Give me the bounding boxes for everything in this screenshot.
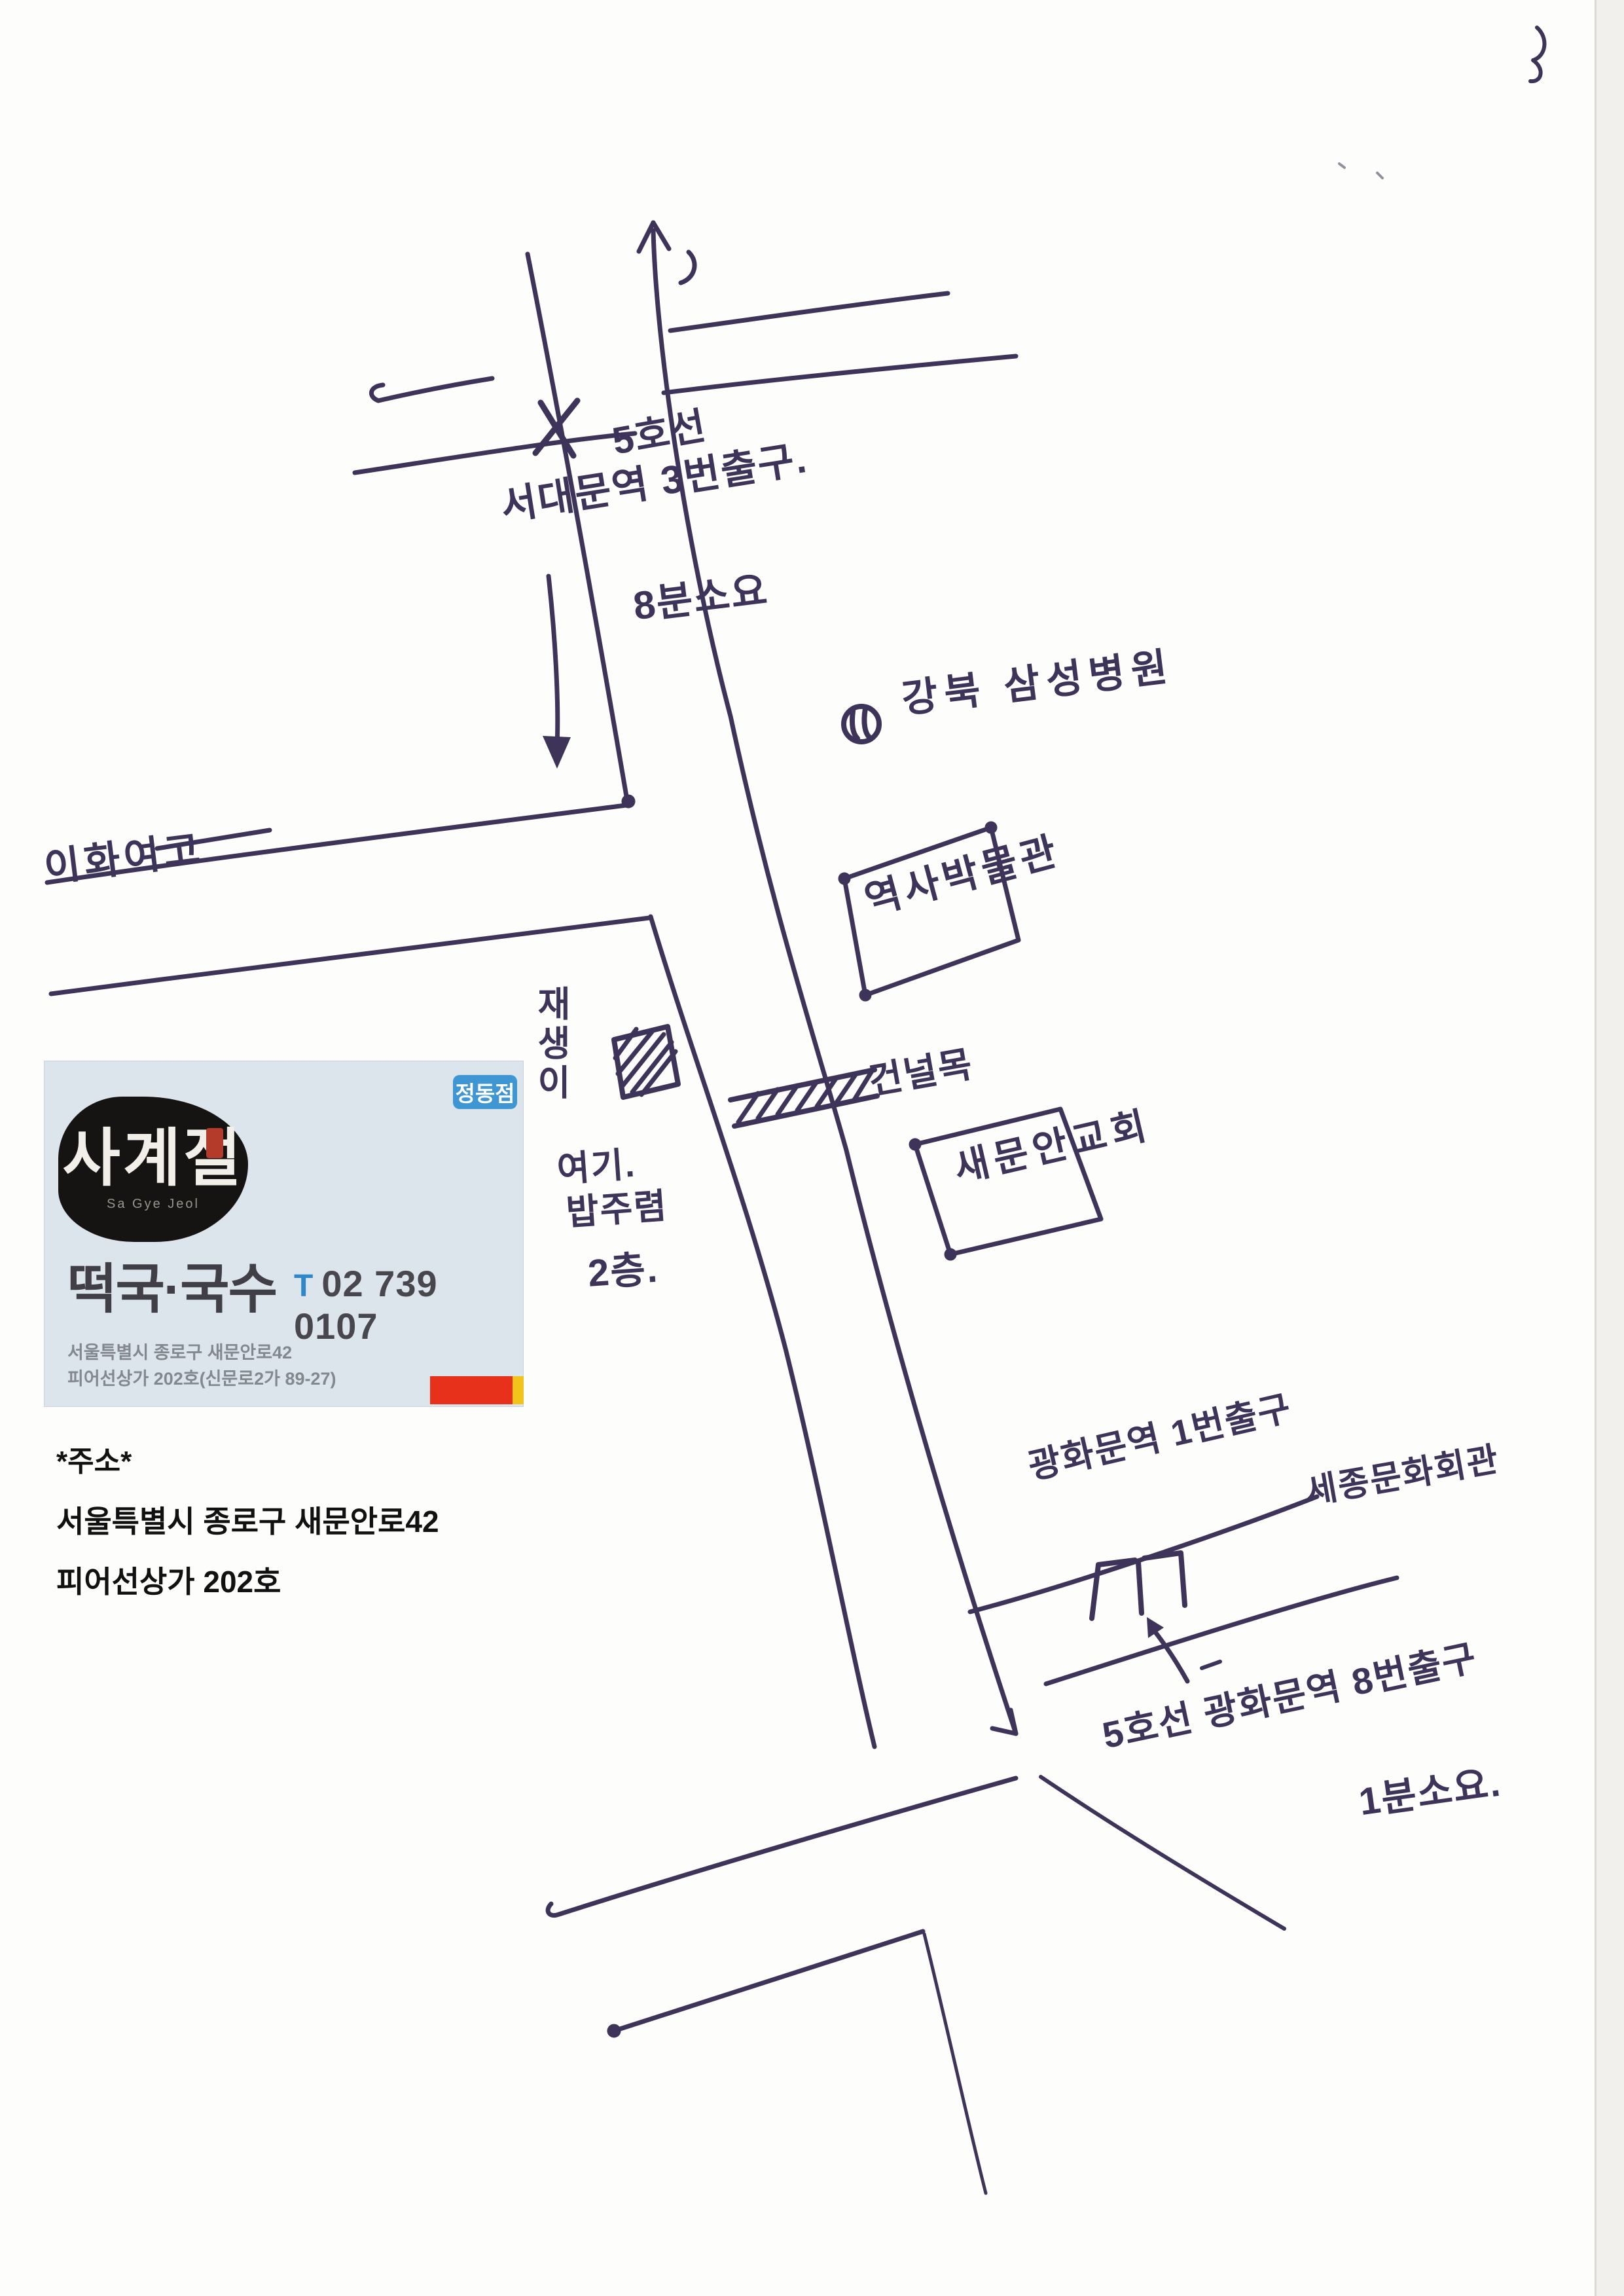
brush-logo: 사계절 Sa Gye Jeol	[58, 1097, 248, 1242]
address-line1: 서울특별시 종로구 새문안로42	[56, 1498, 439, 1541]
card-phone: T02 739 0107	[294, 1262, 524, 1347]
label-destination-name: 밥주렴	[564, 1176, 669, 1235]
typed-address-block: *주소* 서울특별시 종로구 새문안로42 피어선상가 202호	[56, 1438, 439, 1601]
left-arrow-icon	[378, 378, 492, 401]
red-seal-icon	[206, 1128, 223, 1158]
card-address-line2: 피어선상가 202호(신문로2가 89-27)	[67, 1364, 336, 1390]
address-line2: 피어선상가 202호	[56, 1558, 439, 1601]
hatched-building-icon	[614, 1027, 678, 1097]
logo-romanization: Sa Gye Jeol	[107, 1197, 200, 1212]
card-yellow-tip	[513, 1376, 524, 1404]
label-destination-vertical: 재생이	[525, 985, 577, 1103]
main-road-lower	[924, 1777, 1284, 2193]
branch-badge: 정동점	[453, 1075, 517, 1109]
up-arrow-icon	[639, 223, 653, 251]
address-title: *주소*	[56, 1438, 439, 1480]
scanned-page: 5호선 서대문역 3번출구. 8분소요 강북 삼성병원 역사박물관 건널목 새문…	[0, 0, 1624, 2296]
phone-number: 02 739 0107	[294, 1263, 438, 1347]
card-address-line1: 서울특별시 종로구 새문안로42	[67, 1338, 292, 1364]
card-red-ribbon	[430, 1376, 524, 1404]
down-arrow-icon	[543, 576, 571, 769]
subway-exit-gate-icon	[1092, 1553, 1185, 1618]
card-menu-title: 떡국·국수	[67, 1245, 276, 1323]
scanner-edge-shadow	[1595, 0, 1624, 2296]
pen-scribble	[1339, 27, 1544, 178]
phone-prefix: T	[294, 1269, 314, 1303]
business-card: 정동점 사계절 Sa Gye Jeol 떡국·국수 T02 739 0107 서…	[44, 1061, 524, 1407]
bottom-cross-street	[548, 1497, 1397, 2035]
label-floor: 2층.	[586, 1237, 660, 1297]
hospital-circle-icon	[844, 706, 879, 742]
crosswalk-hatch-icon	[731, 1070, 877, 1126]
